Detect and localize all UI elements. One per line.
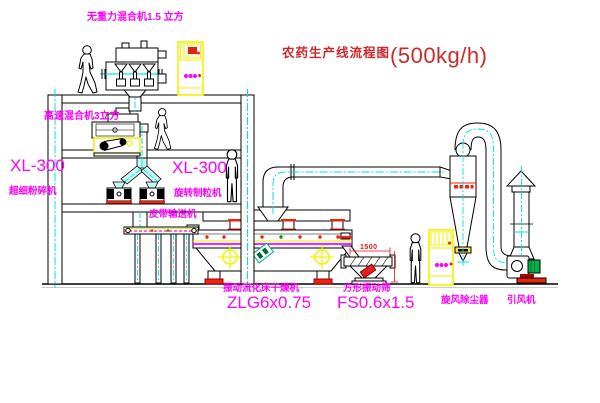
label-xl300-left: XL-300 [10,157,65,174]
ground-line [42,284,558,288]
label-cyclone: 旋风除尘器 [441,296,489,306]
label-xl300-mid: XL-300 [172,159,227,176]
label-gravity-mixer: 无重力混合机1.5 立方 [87,13,184,23]
dimension-1500: 1500 [360,244,378,251]
rotary-granulator [106,158,165,204]
label-granulator: 旋转制粒机 [174,189,222,199]
control-cabinet-1 [178,42,203,95]
cad-flow-diagram: 无重力混合机1.5 立方 农药生产线流程图(500kg/h) 高速混合机3立方 … [0,0,600,403]
induced-draft-fan [507,256,546,283]
title-capacity: (500kg/h) [390,43,487,68]
label-pulverizer: 超细粉碎机 [9,187,57,197]
label-high-speed-mixer: 高速混合机3立方 [44,112,120,122]
page-title: 农药生产线流程图(500kg/h) [282,45,487,67]
label-screen-model: FS0.6x1.5 [337,294,415,311]
cyclone-separator [450,142,476,267]
control-cabinet-2 [429,230,453,285]
belt-conveyor [124,212,198,283]
vibrating-screen [341,246,398,285]
label-fan: 引风机 [507,296,536,306]
label-belt-conveyor: 皮带输送机 [149,210,197,220]
filling-heads [115,64,155,86]
label-dryer-model: ZLG6x0.75 [227,294,311,311]
title-text: 农药生产线流程图 [282,46,390,60]
